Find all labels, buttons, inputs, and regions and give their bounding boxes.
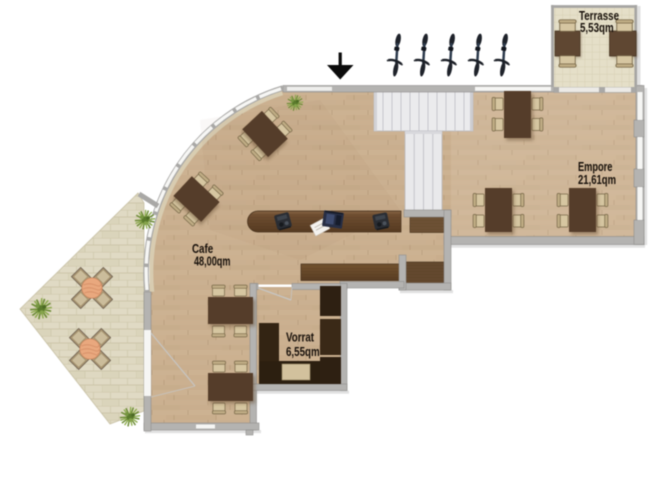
svg-text:5,53qm: 5,53qm bbox=[580, 21, 614, 36]
svg-text:48,00qm: 48,00qm bbox=[194, 255, 230, 269]
svg-text:21,61qm: 21,61qm bbox=[578, 174, 616, 188]
svg-text:Empore: Empore bbox=[578, 161, 612, 175]
svg-text:6,55qm: 6,55qm bbox=[286, 345, 320, 360]
svg-text:Vorrat: Vorrat bbox=[286, 330, 314, 345]
